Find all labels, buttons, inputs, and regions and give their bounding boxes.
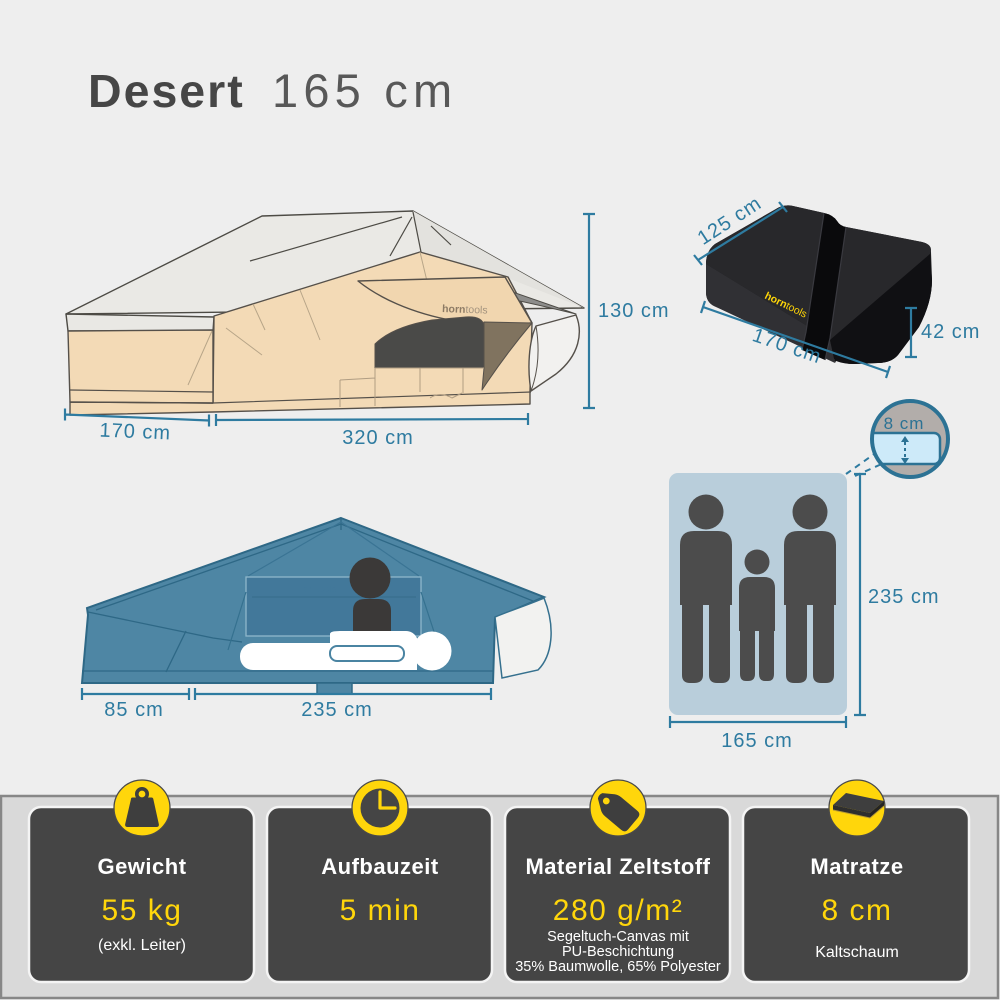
svg-text:5 min: 5 min — [340, 894, 421, 927]
svg-text:Material Zeltstoff: Material Zeltstoff — [525, 854, 710, 879]
svg-text:(exkl. Leiter): (exkl. Leiter) — [98, 937, 186, 954]
svg-text:42 cm: 42 cm — [921, 321, 980, 343]
svg-text:Matratze: Matratze — [810, 854, 903, 879]
svg-text:Aufbauzeit: Aufbauzeit — [321, 854, 439, 879]
svg-text:35% Baumwolle, 65% Polyester: 35% Baumwolle, 65% Polyester — [515, 959, 721, 975]
svg-text:Gewicht: Gewicht — [97, 854, 186, 879]
svg-text:235 cm: 235 cm — [301, 699, 373, 721]
svg-text:165 cm: 165 cm — [272, 64, 457, 117]
svg-text:horntools: horntools — [297, 584, 337, 594]
svg-text:Desert: Desert — [88, 65, 245, 117]
svg-text:PU-Beschichtung: PU-Beschichtung — [562, 944, 674, 960]
svg-text:horntools: horntools — [442, 303, 488, 317]
svg-text:235 cm: 235 cm — [868, 586, 940, 608]
svg-text:170 cm: 170 cm — [99, 419, 171, 444]
svg-text:55 kg: 55 kg — [102, 894, 183, 927]
svg-text:Kaltschaum: Kaltschaum — [815, 944, 899, 961]
svg-text:Segeltuch-Canvas mit: Segeltuch-Canvas mit — [547, 929, 689, 945]
svg-text:165 cm: 165 cm — [721, 730, 793, 752]
svg-text:8 cm: 8 cm — [884, 414, 925, 433]
svg-text:280 g/m²: 280 g/m² — [553, 894, 683, 927]
svg-text:85 cm: 85 cm — [104, 699, 163, 721]
svg-text:8 cm: 8 cm — [821, 894, 892, 927]
svg-text:320 cm: 320 cm — [342, 427, 414, 449]
svg-text:130 cm: 130 cm — [598, 300, 670, 322]
